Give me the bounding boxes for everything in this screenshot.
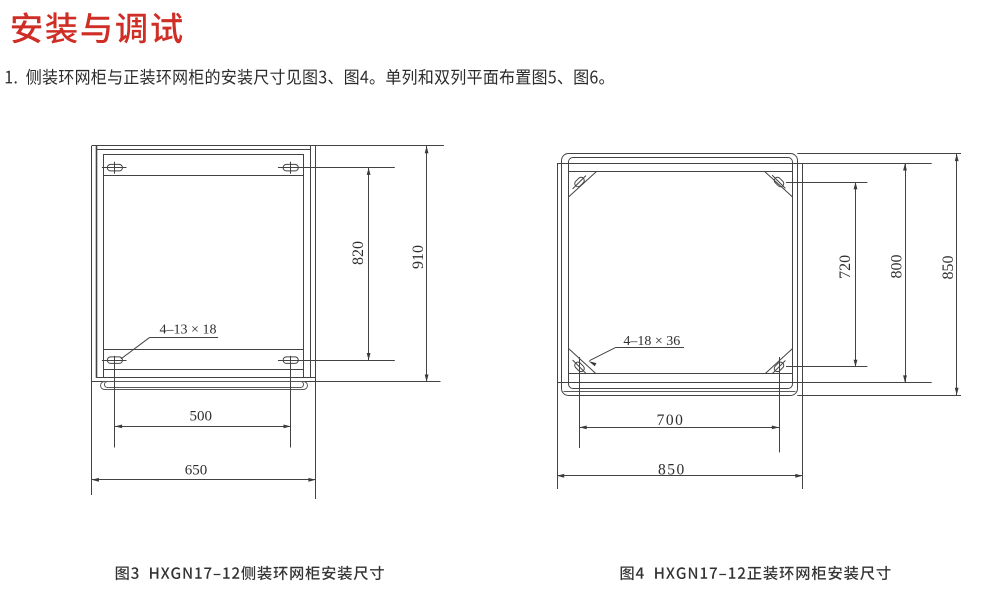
- svg-text:700: 700: [657, 412, 685, 429]
- svg-text:910: 910: [410, 245, 427, 269]
- svg-text:720: 720: [837, 255, 854, 279]
- svg-text:4–13 × 18: 4–13 × 18: [160, 323, 217, 338]
- svg-text:820: 820: [350, 241, 367, 265]
- svg-text:4–18 × 36: 4–18 × 36: [623, 334, 680, 349]
- svg-text:500: 500: [190, 409, 213, 425]
- svg-text:850: 850: [658, 461, 686, 478]
- svg-text:800: 800: [889, 255, 906, 279]
- svg-text:650: 650: [185, 463, 208, 479]
- svg-text:850: 850: [940, 256, 957, 280]
